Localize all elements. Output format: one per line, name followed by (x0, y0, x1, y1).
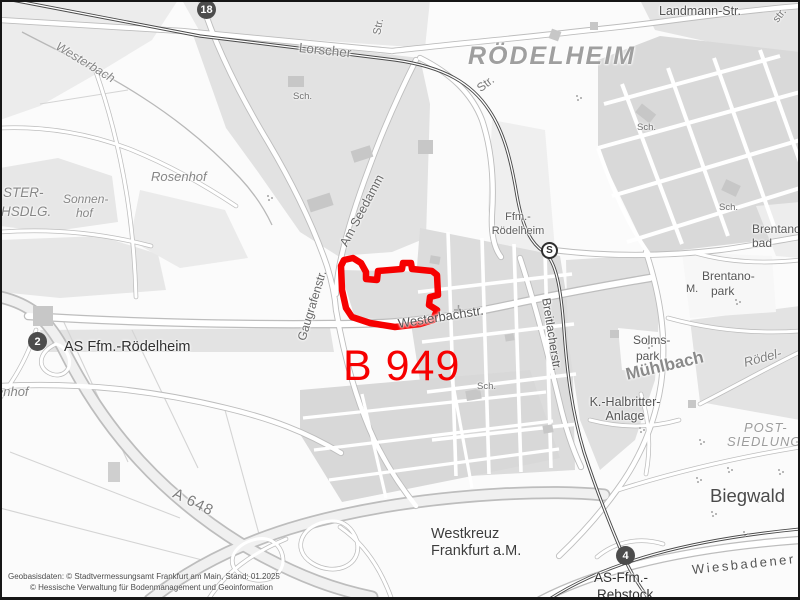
place-label-westkreuz-1: Westkreuz (431, 527, 499, 542)
district-label-roedelheim: RÖDELHEIM (468, 44, 636, 69)
exit-label-roedelheim: AS Ffm.-Rödelheim (64, 340, 191, 355)
sbahn-station-icon: S (541, 242, 558, 259)
place-label-rosenhof: Rosenhof (151, 170, 207, 183)
school-label-2: Sch. (637, 123, 656, 133)
place-label-m: M. (686, 284, 698, 295)
place-label-brentanopark-1: Brentano- (702, 270, 755, 282)
school-label-1: Sch. (293, 92, 312, 102)
place-label-westkreuz-2: Frankfurt a.M. (431, 544, 521, 559)
place-label-hsdlg: HSDLG. (1, 205, 51, 219)
street-label-landmann-str: Landmann-Str. (659, 5, 741, 18)
exit-badge-4: 4 (616, 546, 635, 565)
place-label-brentanopark-2: park (711, 285, 734, 297)
place-label-solmspark-1: Solms- (633, 334, 670, 346)
exit-label-rebstock-1: AS-Ffm.- (594, 571, 648, 585)
district-label-postsiedlung-1: POST- (744, 421, 788, 434)
district-label-postsiedlung-2: SIEDLUNG (727, 435, 800, 448)
station-label-ffm-1: Ffm.- (483, 212, 553, 223)
map-canvas: Landmann-Str. str. RÖDELHEIM Str. Str. L… (0, 0, 800, 600)
station-label-ffm-2: Rödelheim (483, 226, 553, 237)
place-label-brentanobad-2: bad (752, 237, 772, 249)
place-label-halbritter-2: Anlage (570, 410, 680, 423)
route-badge-18: 18 (197, 0, 216, 19)
exit-badge-2: 2 (28, 332, 47, 351)
place-label-halbritter-1: K.-Halbritter- (570, 396, 680, 409)
place-label-enhof: enhof (0, 385, 29, 398)
place-label-sonnenhof-1: Sonnen- (63, 193, 108, 205)
map-graphics (0, 0, 800, 600)
school-label-4: Sch. (477, 382, 496, 392)
district-label-biegwald: Biegwald (710, 487, 785, 506)
place-label-brentanobad-1: Brentano- (752, 223, 800, 235)
school-label-3: Sch. (719, 203, 738, 213)
plan-area-label: B 949 (343, 345, 460, 388)
place-label-ster: STER- (3, 186, 44, 200)
place-label-sonnenhof-2: hof (76, 207, 93, 219)
exit-label-rebstock-2: Rebstock (597, 588, 653, 600)
attribution-line-1: Geobasisdaten: © Stadtvermessungsamt Fra… (8, 572, 280, 581)
attribution-line-2: © Hessische Verwaltung für Bodenmanageme… (30, 583, 273, 592)
